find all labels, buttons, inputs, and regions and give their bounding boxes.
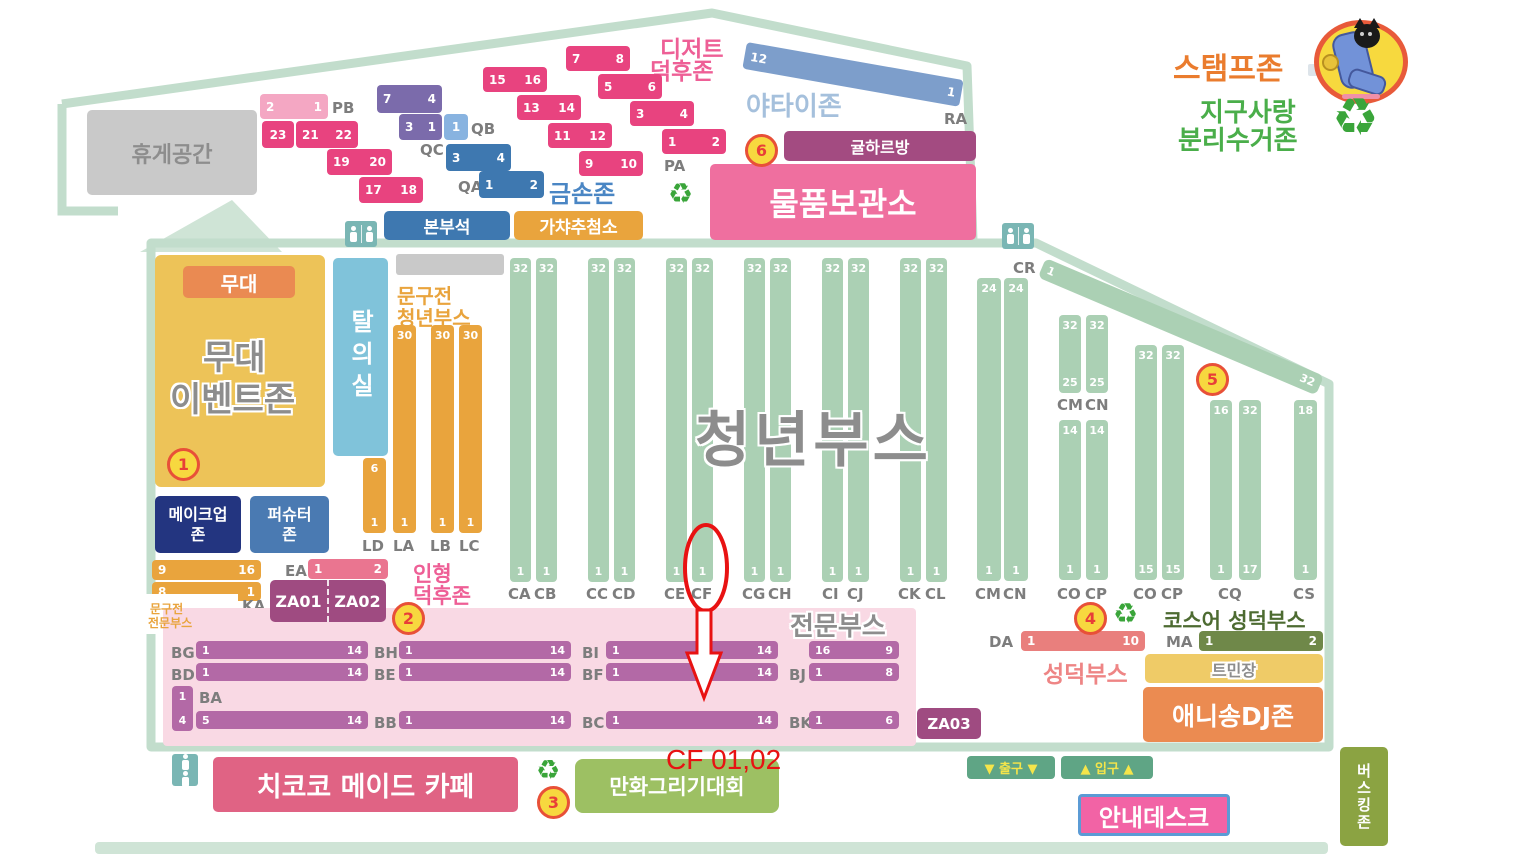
marker-3: 3: [537, 786, 570, 819]
column-la: 301: [393, 325, 416, 533]
maid-cafe-zone: 치코코 메이드 카페: [213, 757, 518, 812]
column-cs: 181: [1294, 400, 1317, 580]
info-desk: 안내데스크: [1078, 794, 1230, 836]
south-exterior-wall: [95, 842, 1328, 854]
booth-be: 114: [399, 663, 571, 681]
restroom-icon: [345, 221, 377, 247]
pro-booth-title: 전문부스: [790, 606, 886, 643]
column-ld: 61: [363, 458, 386, 533]
gacha-zone: 가챠추첨소: [514, 211, 643, 240]
label-ci: CI: [822, 585, 839, 603]
column-lc: 301: [459, 325, 482, 533]
label-qb: QB: [471, 120, 495, 138]
recycle-icon: ♻: [1113, 600, 1138, 628]
label-cp-tall: CP: [1161, 585, 1183, 603]
booth-pa-7-8: 78: [566, 46, 630, 71]
booth-23: 23: [262, 121, 294, 148]
marker-4: 4: [1074, 602, 1107, 635]
booth-bf: 114: [606, 663, 778, 681]
stage-box: 무대: [183, 266, 295, 298]
fursuiter-zone: 퍼슈터존: [250, 496, 329, 553]
busking-zone: 버스킹존: [1340, 747, 1388, 846]
column-cn-short: 3225: [1086, 315, 1108, 393]
column-cp-tall: 3215: [1162, 345, 1184, 580]
column-cd: 321: [614, 258, 635, 582]
label-bc: BC: [582, 714, 604, 732]
entrance-sign: ▲ 입구 ▲: [1061, 756, 1153, 779]
rest-area-label: 휴게공간: [132, 137, 213, 169]
booth-da: 110: [1021, 631, 1145, 651]
label-cs: CS: [1293, 585, 1315, 603]
female-figure-icon: [366, 226, 373, 242]
label-cd: CD: [612, 585, 635, 603]
label-ck: CK: [898, 585, 921, 603]
label-ch: CH: [768, 585, 792, 603]
recycle-icon: ♻: [668, 180, 693, 208]
column-cn-tall: 241: [1004, 278, 1028, 581]
label-pa: PA: [664, 157, 685, 175]
booth-bh: 114: [399, 641, 571, 659]
booth-21-22: 2122: [296, 121, 358, 148]
recycle-icon: ♻: [536, 757, 560, 784]
label-da: DA: [989, 633, 1013, 651]
label-co: CO: [1057, 585, 1081, 603]
booth-bd: 114: [196, 663, 368, 681]
stationery-pro-title-line2: 전문부스: [148, 614, 192, 631]
label-ea: EA: [285, 562, 307, 580]
booth-pa-3-4: 34: [630, 101, 694, 126]
booth-7-4: 74: [377, 85, 442, 113]
booth-bk: 16: [809, 711, 899, 729]
booth-3-1: 31: [399, 114, 442, 140]
stage-event-title-line2: 이벤트존: [170, 372, 295, 421]
label-bi: BI: [582, 644, 599, 662]
marker-5: 5: [1196, 363, 1229, 396]
label-lb: LB: [430, 537, 451, 555]
label-cc: CC: [586, 585, 608, 603]
booth-17-18: 1718: [359, 177, 423, 203]
booth-qb-1: 1: [444, 114, 468, 140]
column-co-short: 141: [1059, 420, 1081, 580]
booth-ea-1-2: 12: [308, 559, 388, 579]
earth-recycle-title-line2: 분리수거존: [1178, 120, 1298, 157]
label-qc: QC: [420, 141, 444, 159]
venue-floor-map: 휴게공간 21 PB 23 2122 1920 1718 74 31 1 QB …: [0, 0, 1536, 864]
booth-pa-11-12: 1112: [548, 123, 612, 148]
female-figure-icon: [182, 771, 189, 786]
column-cm-tall: 241: [977, 278, 1001, 581]
marker-2: 2: [392, 602, 425, 635]
youth-booth-title: 청년부스: [695, 392, 932, 479]
booth-bb: 114: [399, 711, 571, 729]
stamp-zone-title: 스탬프존: [1173, 44, 1283, 88]
column-cq-2: 3217: [1239, 400, 1261, 580]
booth-ba-vertical: 14: [172, 686, 193, 731]
booth-ba-5-14: 514: [196, 711, 368, 729]
label-bd: BD: [171, 666, 195, 684]
column-lb: 301: [431, 325, 454, 533]
label-cg: CG: [742, 585, 765, 603]
yatai-zone-title: 야타이존: [746, 86, 842, 123]
female-figure-icon: [1023, 228, 1030, 244]
label-bh: BH: [374, 644, 398, 662]
label-bj: BJ: [789, 666, 806, 684]
label-cm-short: CM: [1057, 396, 1083, 414]
gyul-harubang-zone: 귤하르방: [784, 131, 976, 161]
exit-sign: ▼ 출구 ▼: [967, 756, 1055, 779]
booth-qc-3-4: 34: [446, 144, 511, 171]
male-figure-icon: [182, 754, 189, 769]
column-cb: 321: [536, 258, 557, 582]
booth-qa-1-2: 12: [479, 171, 544, 198]
column-ce: 321: [666, 258, 687, 582]
booth-pa-13-14: 1314: [517, 95, 581, 120]
label-ld: LD: [362, 537, 384, 555]
seongdeok-booth-title: 성덕부스: [1043, 655, 1128, 689]
label-ca: CA: [508, 585, 531, 603]
male-figure-icon: [350, 226, 357, 242]
column-cq-1: 161: [1210, 400, 1232, 580]
column-co-tall: 3215: [1135, 345, 1157, 580]
booth-pa-1-2: 12: [662, 129, 726, 154]
booth-bi: 114: [606, 641, 778, 659]
booth-bc: 114: [606, 711, 778, 729]
rest-area-zone: 휴게공간: [87, 110, 257, 195]
label-lc: LC: [459, 537, 480, 555]
marker-1: 1: [167, 448, 200, 481]
label-la: LA: [393, 537, 414, 555]
anisong-dj-zone: 애니송DJ존: [1143, 687, 1323, 742]
label-bf: BF: [582, 666, 604, 684]
recycle-icon-large: ♻: [1332, 92, 1379, 144]
booth-pa-15-16: 1516: [483, 67, 547, 92]
label-cj: CJ: [847, 585, 864, 603]
label-pb: PB: [332, 99, 354, 117]
marker-6: 6: [745, 134, 778, 167]
restroom-icon: [1002, 223, 1034, 249]
label-cf: CF: [691, 585, 712, 603]
booth-bj-16-9: 169: [809, 641, 899, 659]
dressing-room-zone: 탈의실: [333, 258, 388, 456]
booth-ka-9-16: 916: [152, 560, 261, 580]
booth-za01-za02: ZA01ZA02: [270, 580, 386, 622]
label-ba: BA: [199, 689, 222, 707]
restroom-icon: [172, 754, 198, 786]
doll-zone-title-line2: 덕후존: [413, 580, 471, 610]
booth-pb: 21: [260, 94, 328, 119]
booth-19-20: 1920: [327, 149, 392, 175]
label-bb: BB: [374, 714, 397, 732]
makeup-zone: 메이크업존: [155, 496, 241, 553]
booth-pa-5-6: 56: [598, 74, 662, 99]
roof-gable-shape: [140, 200, 282, 252]
label-cb: CB: [534, 585, 556, 603]
hq-zone: 본부석: [384, 211, 510, 240]
label-cn-short: CN: [1085, 396, 1109, 414]
goldhand-zone-title: 금손존: [549, 174, 615, 209]
annotation-text: CF 01,02: [666, 744, 781, 776]
label-cn: CN: [1003, 585, 1027, 603]
label-be: BE: [374, 666, 396, 684]
gray-counter: [396, 254, 504, 275]
label-ce: CE: [664, 585, 685, 603]
booth-ma: 12: [1199, 631, 1323, 651]
label-bg: BG: [171, 644, 195, 662]
booth-pa-9-10: 910: [579, 151, 643, 176]
booth-bg: 114: [196, 641, 368, 659]
label-ma: MA: [1166, 633, 1193, 651]
column-cp-short: 141: [1086, 420, 1108, 580]
male-figure-icon: [1007, 228, 1014, 244]
label-ra: RA: [944, 110, 967, 128]
label-cp: CP: [1085, 585, 1107, 603]
tmin-zone: 트민장: [1145, 654, 1323, 683]
label-cl: CL: [925, 585, 946, 603]
label-cr: CR: [1013, 259, 1036, 277]
label-cq: CQ: [1218, 585, 1242, 603]
column-cc: 321: [588, 258, 609, 582]
label-cm: CM: [975, 585, 1001, 603]
booth-za03: ZA03: [917, 708, 981, 739]
column-ca: 321: [510, 258, 531, 582]
booth-bj-1-8: 18: [809, 663, 899, 681]
column-cm-short: 3225: [1059, 315, 1081, 393]
storage-zone: 물품보관소: [710, 164, 976, 240]
